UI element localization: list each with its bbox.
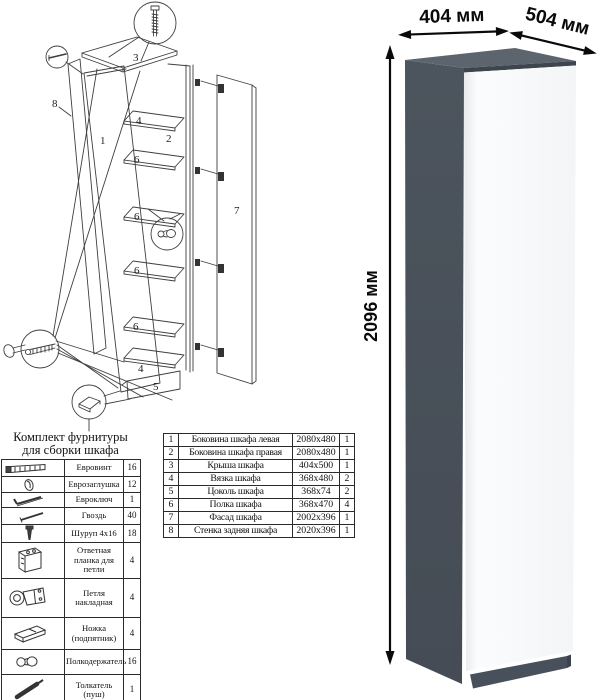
hardware-kit: Комплект фурнитуры для сборки шкафа Евро… [1,431,140,700]
diagram-label-8: 8 [52,98,58,110]
facade-outline [217,75,252,384]
hex-key-icon [3,494,55,507]
back-panel-outline [68,59,106,354]
hinge-icon [3,580,55,616]
hardware-row: Гвоздь 40 [2,508,141,525]
top-tie-board [124,111,184,131]
parts-row: 5Цоколь шкафа 368x742 [164,486,355,499]
nail-callout [46,46,68,68]
hardware-row: Ножка (подпятник) 4 [2,618,141,650]
parts-table: 1Боковина шкафа левая 2080x4801 2Боковин… [163,433,349,538]
width-dimension-label: 404 мм [419,5,485,28]
nail-icon [3,509,55,524]
diagram-label-4-top: 4 [136,115,142,127]
diagram-label-3: 3 [133,52,139,64]
diagram-label-6: 6 [134,154,140,166]
roof-outline [82,37,177,68]
push-opener-icon [3,675,55,700]
hardware-row: Шуруп 4x16 18 [2,525,141,543]
diagram-label-2: 2 [166,133,172,145]
diagram-label-6: 6 [133,321,139,333]
parts-row: 6Полка шкафа 368x4704 [164,499,355,512]
wardrobe-plinth-edge [567,655,571,669]
hardware-row: Ответная планка для петли 4 [2,543,141,579]
depth-dimension-label: 504 мм [523,4,591,40]
hardware-row: Толкатель (пуш) 1 [2,675,141,700]
wardrobe-side-face [405,60,464,684]
parts-row: 7Фасад шкафа 2002x3961 [164,512,355,525]
parts-row: 3Крыша шкафа 404x5001 [164,460,355,473]
hardware-kit-title: Комплект фурнитуры для сборки шкафа [1,431,140,457]
euro-screw-key-callout [2,330,59,368]
screw-icon [3,525,55,542]
exploded-diagram: 1 2 3 4 6 6 6 6 4 5 7 8 [0,0,365,432]
confirmat-screw-callout [134,2,176,44]
diagram-label-7: 7 [234,205,240,217]
hardware-row: Петля накладная 4 [2,579,141,618]
diagram-label-5: 5 [153,381,159,393]
parts-row: 4Вязка шкафа 368x4802 [164,473,355,486]
width-dimension [398,27,509,40]
shelf-board [124,150,184,170]
diagram-label-1: 1 [100,135,106,147]
hardware-row: Полкодержатель 16 [2,650,141,675]
diagram-label-6: 6 [134,265,140,277]
diagram-label-6: 6 [134,211,140,223]
euro-cap-icon [3,478,55,492]
parts-row: 1Боковина шкафа левая 2080x4801 [164,434,355,447]
shelf-board [124,261,184,281]
strike-plate-icon [3,544,55,578]
hardware-row: Евровинт 16 [2,460,141,477]
diagram-label-4-bottom: 4 [138,363,144,375]
wardrobe-door [464,66,576,672]
euro-screw-icon [3,461,55,476]
wardrobe-top-face [405,48,576,68]
parts-row: 2Боковина шкафа правая 2080x4801 [164,447,355,460]
assembly-sheet: 1 2 3 4 6 6 6 6 4 5 7 8 Комплект фурниту… [0,0,601,700]
depth-dimension [508,28,598,58]
parts-row: 8Стенка задняя шкафа 2020x3961 [164,525,355,538]
hardware-row: Еврозаглушка 12 [2,477,141,493]
wardrobe-plinth [470,656,567,689]
bottom-tie-board [124,348,184,368]
foot-icon [3,620,55,648]
shelf-holder-icon [3,651,55,673]
foot-callout [72,385,106,419]
hardware-kit-table: Евровинт 16 Еврозаглушка 12 Евроключ 1 [1,459,141,700]
hardware-row: Евроключ 1 [2,493,141,508]
wardrobe-top-edge [464,61,576,73]
hinge-details [195,79,224,357]
